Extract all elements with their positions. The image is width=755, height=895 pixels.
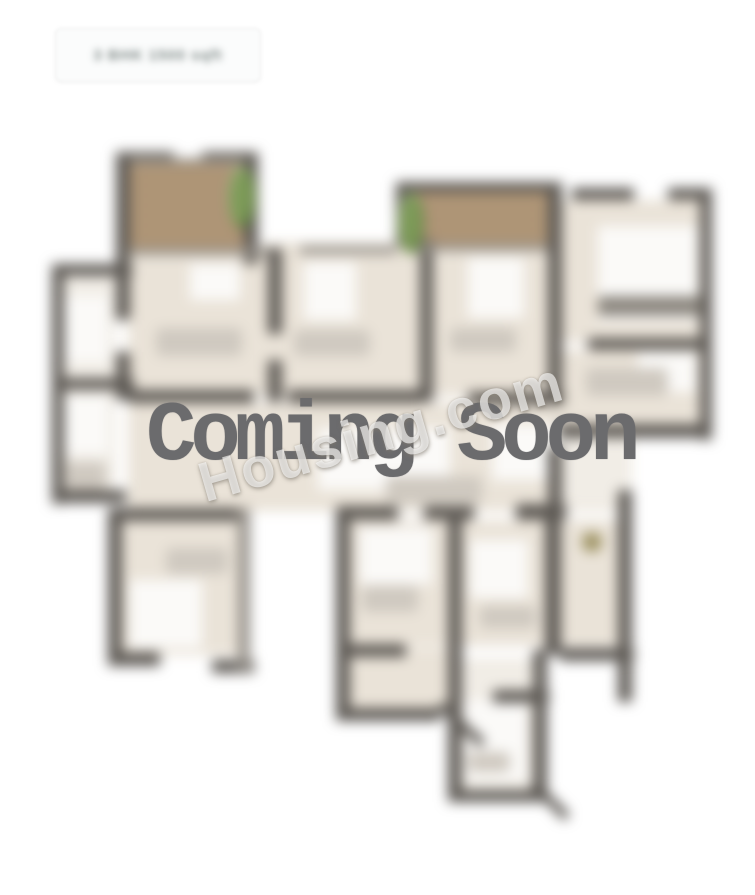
fixture: [190, 264, 240, 300]
balcony-deck: [410, 192, 550, 246]
wall-segment: [572, 188, 634, 200]
fixture: [470, 540, 528, 598]
plant-pot-icon: [582, 532, 602, 552]
fixture: [468, 258, 524, 318]
wall-segment: [128, 248, 270, 255]
wall-segment: [268, 248, 282, 334]
room-floor: [350, 648, 448, 708]
fixture: [304, 262, 356, 320]
floorplan-page: Coming Soon Housing.com 3 BHK 1500 sqft: [0, 0, 755, 895]
wall-segment: [336, 506, 350, 718]
wall-segment: [420, 240, 433, 402]
plant-icon: [228, 166, 256, 228]
wall-segment: [336, 708, 440, 721]
furniture: [362, 586, 418, 612]
wall-segment: [300, 246, 396, 254]
fixture: [64, 396, 108, 454]
railing: [130, 158, 244, 164]
wall-segment: [238, 508, 250, 670]
wall-segment: [700, 188, 712, 440]
wall-segment: [116, 264, 130, 320]
wall-segment: [533, 650, 547, 802]
wall-segment: [448, 790, 547, 802]
chip-label: 3 BHK 1500 sqft: [93, 47, 222, 64]
fixture: [64, 296, 108, 362]
wall-segment: [348, 644, 406, 657]
wall-segment: [396, 182, 558, 192]
wall-segment: [108, 508, 122, 666]
wall-segment: [408, 244, 552, 251]
wall-segment: [108, 652, 160, 666]
wall-segment: [560, 648, 634, 661]
furniture: [468, 752, 510, 772]
furniture: [450, 328, 516, 352]
wall-segment: [588, 338, 712, 350]
wall-segment: [545, 505, 561, 655]
wall-segment: [336, 506, 398, 520]
furniture: [156, 328, 242, 356]
fixture: [130, 580, 202, 648]
plant-icon: [398, 192, 424, 254]
furniture: [166, 548, 228, 574]
wall-segment: [52, 490, 126, 503]
furniture: [294, 330, 370, 356]
wall-segment: [618, 490, 632, 702]
fixture: [360, 528, 432, 584]
furniture: [66, 462, 106, 490]
furniture: [598, 296, 702, 316]
wall-segment: [448, 508, 462, 798]
wall-segment: [52, 378, 134, 390]
floorplan-size-chip[interactable]: 3 BHK 1500 sqft: [55, 28, 261, 82]
furniture: [480, 606, 536, 628]
